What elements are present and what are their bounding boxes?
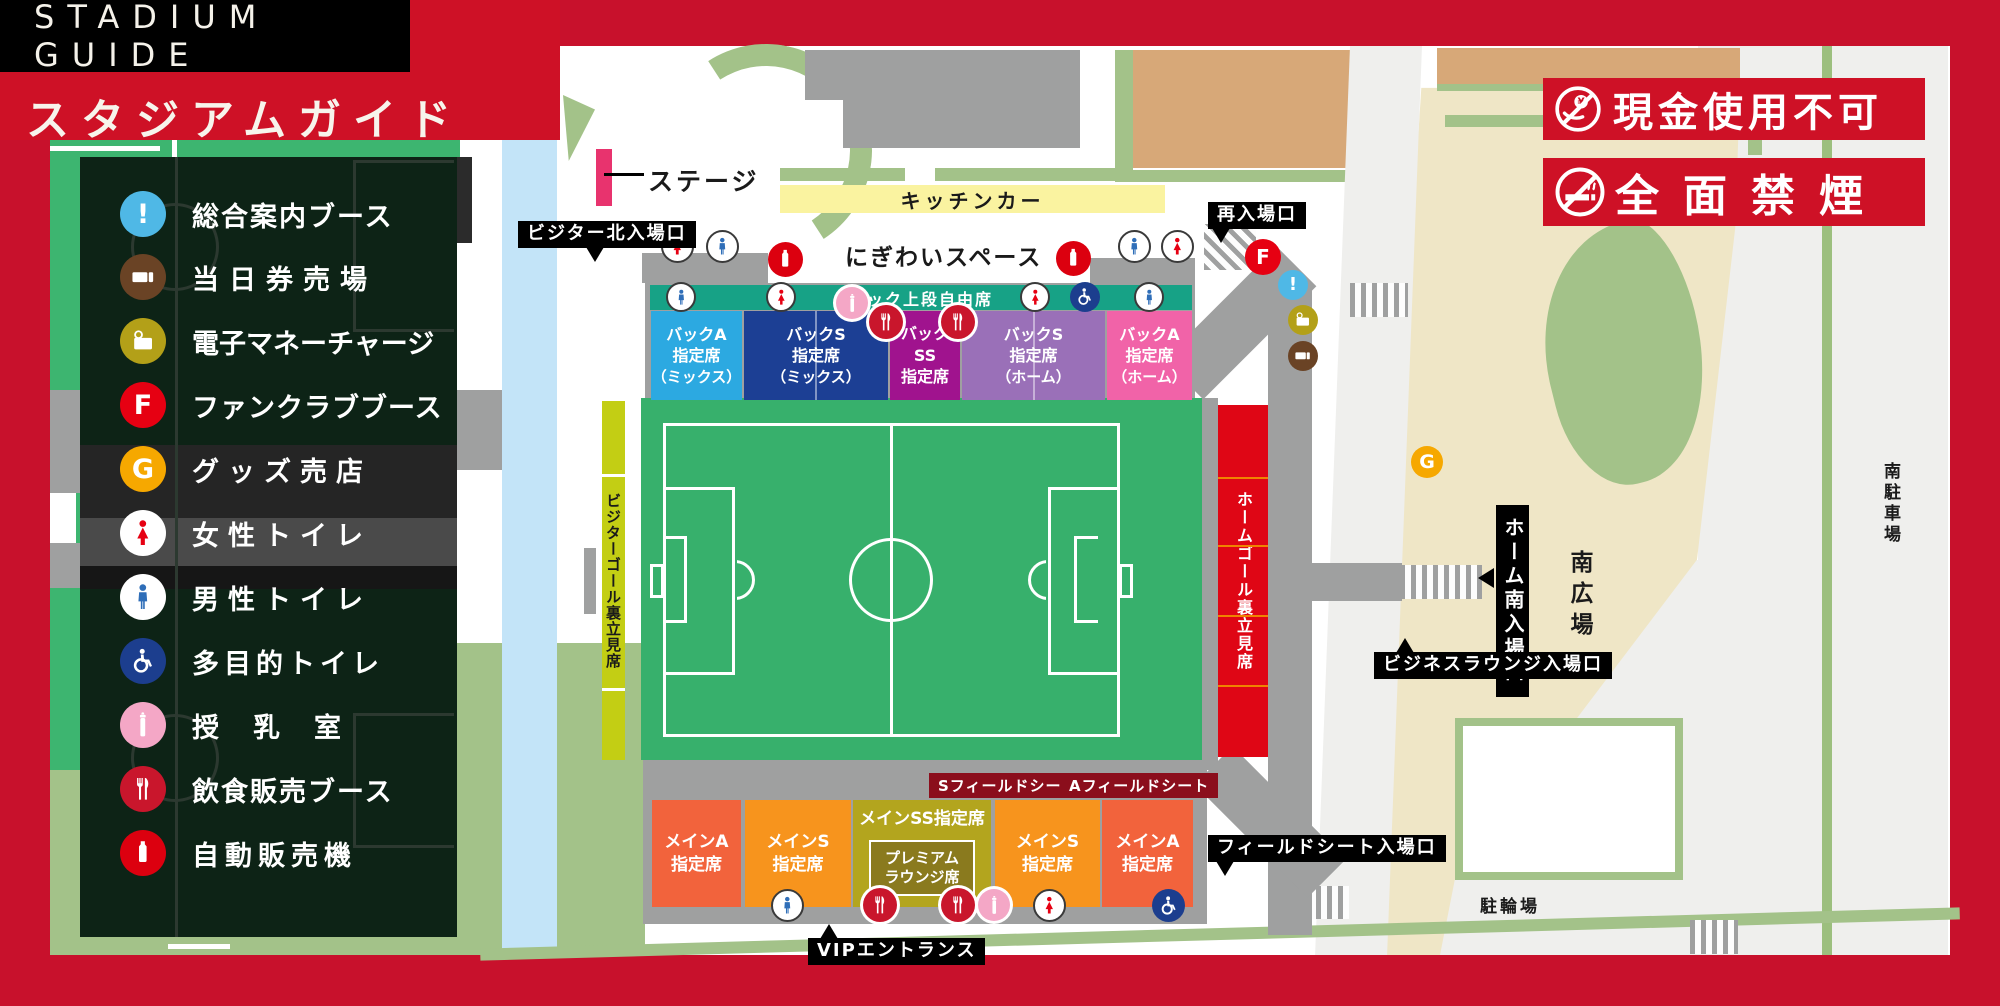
west-building [50, 543, 80, 588]
no-cash-banner: ¥ 現金使用不可 [1543, 78, 1925, 140]
no-smoking-icon [1553, 165, 1607, 219]
pointer-up [820, 924, 838, 939]
legend-item-label: 飲食販売ブース [192, 770, 394, 809]
north-building [805, 50, 1080, 148]
seat-back-a-mix: バックA指定席（ミックス） [651, 311, 742, 400]
title-ja: スタジアムガイド [26, 96, 463, 146]
men-toilet-icon [1118, 230, 1151, 263]
food-booth-icon [863, 888, 897, 922]
concourse-walkway [1312, 563, 1402, 601]
seat-back-s-mix: バックS指定席（ミックス） [744, 311, 888, 400]
pitch-goalarea-right [1074, 536, 1098, 623]
women-toilet-icon [120, 510, 166, 556]
women-toilet-icon [1161, 230, 1194, 263]
seat-main-a-east: メインA指定席 [1102, 800, 1193, 907]
title-ja-box: スタジアムガイド [26, 86, 463, 148]
no-smoking-label: 全面禁煙 [1615, 160, 1887, 224]
men-toilet-icon [771, 889, 804, 922]
seat-back-s-home: バックS指定席（ホーム） [962, 311, 1105, 400]
kitchen-car-label: キッチンカー [901, 185, 1045, 214]
emoney-charge-icon [120, 318, 166, 364]
legend-item-label: 当日券売場 [192, 258, 377, 297]
pointer-down [586, 247, 604, 262]
legend-item-nursing: 授乳室 [80, 701, 457, 749]
accessible-toilet-icon [120, 638, 166, 684]
food-booth-icon [941, 888, 975, 922]
legend-item-label: 女性トイレ [192, 514, 372, 553]
legend-item-label: 男性トイレ [192, 578, 372, 617]
field-seat-entrance-label: フィールドシート入場口 [1208, 835, 1446, 862]
stadium-guide-poster: ステージ キッチンカー [0, 0, 2000, 1006]
hedge [935, 168, 1115, 181]
seat-main-a-west: メインA指定席 [652, 800, 741, 907]
pitch-goal-right [1119, 564, 1133, 598]
crosswalk [1690, 920, 1738, 954]
west-bank [80, 937, 460, 955]
accessible-toilet-icon [1152, 889, 1185, 922]
vending-machine-icon [768, 242, 803, 277]
women-toilet-icon [766, 282, 796, 312]
kitchen-car-strip: キッチンカー [780, 185, 1165, 213]
legend-item-label: 総合案内ブース [192, 195, 394, 234]
building-block [457, 390, 502, 470]
legend-item-label: グッズ売店 [192, 450, 372, 489]
building-block [457, 157, 472, 243]
fanclub-icon: F [120, 382, 166, 428]
seat-divider [1033, 311, 1035, 400]
legend-item-info: ! 総合案内ブース [80, 190, 457, 238]
food-booth-icon [941, 305, 975, 339]
legend-field-box [353, 160, 454, 332]
a-field-seat-label: Aフィールドシート [1060, 773, 1218, 798]
ticket-office-icon [1288, 341, 1318, 371]
strip-divider [1218, 477, 1268, 479]
men-toilet-icon [120, 574, 166, 620]
vip-entrance-label: VIPエントランス [808, 938, 985, 965]
concourse [1202, 398, 1218, 770]
west-building [50, 390, 80, 493]
stage-pointer-line [604, 173, 644, 176]
ticket-icon [120, 254, 166, 300]
title-block: STADIUM GUIDE スタジアムガイド [0, 0, 560, 140]
bicycle-parking-label: 駐輪場 [1480, 892, 1540, 917]
legend-item-emoney: 電子マネーチャージ [80, 317, 457, 365]
strip-divider [602, 474, 625, 477]
visitor-goal-label: ビジターゴール裏立見席 [603, 493, 624, 669]
legend-item-ticket: 当日券売場 [80, 253, 457, 301]
accessible-toilet-icon [1070, 282, 1100, 312]
south-plaza-label: 南広場 [1562, 550, 1596, 643]
stage-label: ステージ [648, 162, 760, 198]
home-goal-strip: ホームゴール裏立見席 [1218, 405, 1268, 757]
home-goal-label: ホームゴール裏立見席 [1231, 491, 1255, 671]
goods-icon: G [120, 446, 166, 492]
vending-icon [120, 830, 166, 876]
no-cash-label: 現金使用不可 [1613, 80, 1883, 138]
info-icon: ! [120, 191, 166, 237]
legend-item-women-toilet: 女性トイレ [80, 509, 457, 557]
visitor-north-entrance-label: ビジター北入場口 [518, 221, 696, 248]
pointer-down [1216, 861, 1234, 876]
back-upper-strip: バック上段自由席 [650, 285, 1192, 310]
legend-item-goods: G グッズ売店 [80, 445, 457, 493]
back-upper-label: バック上段自由席 [849, 286, 993, 310]
info-booth-icon: ! [1278, 270, 1308, 300]
crosswalk [1400, 565, 1482, 599]
fanclub-booth-icon: F [1245, 239, 1281, 275]
legend-item-label: 多目的トイレ [192, 642, 384, 681]
hedge [1115, 50, 1133, 182]
concourse [642, 253, 768, 283]
south-parking-label: 南駐車場 [1878, 462, 1903, 546]
legend-item-accessible-toilet: 多目的トイレ [80, 637, 457, 685]
women-toilet-icon [1020, 282, 1050, 312]
crosswalk [1350, 283, 1408, 317]
goods-shop-icon: G [1411, 446, 1443, 478]
pitch-goalarea-left [663, 536, 687, 623]
southeast-building [1455, 718, 1683, 880]
pointer-up [1396, 638, 1414, 653]
legend-item-food: 飲食販売ブース [80, 765, 457, 813]
hedge [780, 168, 905, 181]
legend-item-label: 電子マネーチャージ [192, 322, 434, 361]
no-cash-icon: ¥ [1553, 84, 1603, 134]
legend-item-label: 授乳室 [192, 706, 375, 745]
stage-marker [596, 149, 612, 206]
legend-item-label: 自動販売機 [192, 834, 357, 873]
legend-panel: ! 総合案内ブース 当日券売場 電子マネーチャージ F ファンクラブブース G … [80, 157, 457, 937]
legend-item-label: ファンクラブブース [192, 386, 443, 425]
women-toilet-icon [1033, 889, 1066, 922]
vending-machine-icon [1056, 241, 1091, 276]
nursing-room-icon [978, 889, 1010, 921]
pointer-left [1478, 568, 1494, 588]
legend-item-men-toilet: 男性トイレ [80, 573, 457, 621]
reentry-gate-label: 再入場口 [1208, 202, 1306, 229]
food-booth-icon [869, 305, 903, 339]
legend-item-fanclub: F ファンクラブブース [80, 381, 457, 429]
nigiwai-space-label: にぎわいスペース [845, 238, 1042, 272]
strip-divider [1218, 545, 1268, 547]
west-bank [50, 770, 80, 955]
seat-divider [815, 311, 817, 400]
nursing-room-icon [120, 702, 166, 748]
hedge [1133, 170, 1365, 182]
pitch-goal-left [650, 564, 664, 598]
nursing-room-icon [836, 287, 868, 319]
pitch [641, 398, 1202, 760]
west-gap [50, 493, 76, 543]
emoney-charge-icon [1288, 305, 1318, 335]
northeast-building [1133, 50, 1365, 168]
business-lounge-entrance-label: ビジネスラウンジ入場口 [1374, 652, 1612, 679]
strip-divider [602, 688, 625, 691]
title-en-box: STADIUM GUIDE [0, 0, 410, 72]
field-line [168, 944, 230, 949]
food-icon [120, 766, 166, 812]
seat-back-a-home: バックA指定席（ホーム） [1107, 311, 1192, 400]
men-toilet-icon [1134, 282, 1164, 312]
seat-main-s-west: メインS指定席 [745, 800, 851, 907]
title-en: STADIUM GUIDE [34, 0, 410, 74]
men-toilet-icon [666, 282, 696, 312]
strip-divider [1218, 685, 1268, 687]
pointer-down [1212, 228, 1230, 243]
pitch-center-circle [849, 538, 933, 622]
river [502, 140, 557, 955]
small-building [584, 548, 596, 614]
men-toilet-icon [706, 230, 739, 263]
no-smoking-banner: 全面禁煙 [1543, 158, 1925, 226]
strip-divider [1218, 615, 1268, 617]
visitor-goal-strip: ビジターゴール裏立見席 [602, 401, 625, 760]
legend-item-vending: 自動販売機 [80, 829, 457, 877]
north-building-notch [805, 100, 843, 148]
